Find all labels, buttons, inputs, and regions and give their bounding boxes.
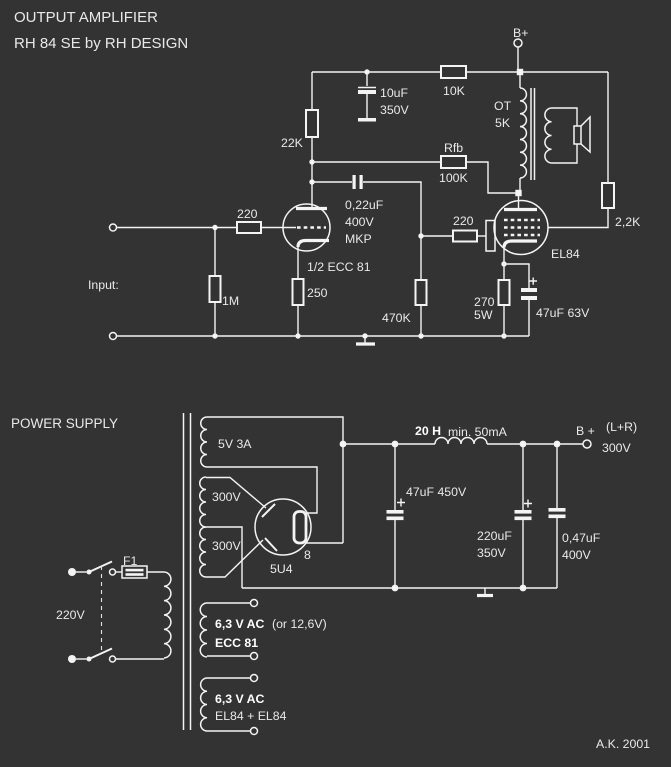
heater1-alt: (or 12,6V) — [272, 617, 327, 631]
cathode-cap-label: 47uF 63V — [536, 306, 590, 320]
page-subtitle: RH 84 SE by RH DESIGN — [14, 35, 188, 52]
ot-impedance: 5K — [495, 116, 511, 130]
heater2-tube: EL84 + EL84 — [215, 709, 287, 723]
filter-cap1-label: 47uF 450V — [406, 485, 467, 499]
bplus-output-terminal — [583, 440, 591, 448]
resistor-10k — [441, 66, 466, 78]
power-transformer — [164, 413, 207, 731]
winding-6v3-ecc81 — [200, 603, 207, 657]
page-title: OUTPUT AMPLIFIER — [14, 9, 158, 26]
resistor-470k — [416, 280, 427, 305]
heater1-value: 6,3 V AC — [215, 617, 265, 631]
output-transformer — [520, 88, 552, 180]
cap-10uf-voltage: 350V — [380, 103, 410, 117]
rectifier-label: 5U4 — [270, 562, 293, 576]
winding-6v3-el84 — [201, 678, 207, 731]
heater2-terminal-bottom — [251, 728, 258, 735]
fuse-label: F1 — [123, 554, 138, 568]
resistor-1m-label: 1M — [222, 294, 239, 308]
heater1-terminal-top — [251, 600, 258, 607]
resistor-270-power: 5W — [474, 308, 493, 322]
winding-300v-lower — [200, 527, 206, 577]
resistor-10k-label: 10K — [443, 84, 466, 98]
coupling-cap-type: MKP — [345, 232, 372, 246]
rfb-value: 100K — [439, 171, 469, 185]
schematic-page: B+ 10uF 350V 10K OT 5K 22K Rfb 100K 220 … — [0, 0, 671, 767]
filter-cap2-voltage: 350V — [477, 546, 507, 560]
heater1-terminal-bottom — [251, 653, 258, 660]
winding-300v-lower-label: 300V — [212, 539, 242, 553]
rfb-label: Rfb — [444, 141, 463, 155]
resistor-250 — [293, 279, 304, 305]
resistor-220-el84 — [453, 231, 477, 242]
heater2-value: 6,3 V AC — [215, 692, 265, 706]
power-supply-labels: POWER SUPPLY 5V 3A 300V 300V 20 H min. 5… — [11, 416, 637, 723]
resistor-22k — [306, 110, 318, 137]
coupling-cap-voltage: 400V — [345, 215, 375, 229]
amplifier-labels: B+ 10uF 350V 10K OT 5K 22K Rfb 100K 220 … — [88, 26, 641, 325]
input-terminal-top — [110, 224, 117, 231]
schematic-drawing: B+ 10uF 350V 10K OT 5K 22K Rfb 100K 220 … — [0, 0, 671, 767]
ot-label: OT — [494, 99, 512, 113]
el84-tube — [486, 201, 548, 255]
resistor-2k2-label: 2,2K — [615, 215, 641, 229]
resistor-220-ecc81 — [237, 222, 261, 233]
bplus-channels: (L+R) — [606, 420, 637, 434]
coupling-cap-value: 0,22uF — [345, 198, 384, 212]
resistor-1m — [210, 276, 221, 302]
choke-rating: min. 50mA — [448, 425, 508, 439]
input-label: Input: — [88, 278, 119, 292]
rectifier-5u4-tube — [255, 499, 311, 555]
winding-300v-upper — [200, 477, 206, 527]
resistor-250-label: 250 — [307, 286, 328, 300]
resistor-22k-label: 22K — [281, 136, 304, 150]
winding-300v-upper-label: 300V — [212, 490, 242, 504]
heater1-tube: ECC 81 — [215, 636, 258, 650]
capacitor-0-47uf-400v — [549, 508, 566, 518]
resistor-270-value: 270 — [474, 295, 495, 309]
bplus-voltage: 300V — [602, 441, 632, 455]
rectifier-pin-label: 8 — [304, 548, 311, 562]
cap-10uf-value: 10uF — [380, 86, 409, 100]
power-supply-wires — [76, 417, 583, 731]
capacitor-47uf-450v — [387, 499, 406, 521]
bplus-output-label: B + — [576, 424, 595, 438]
resistor-220-ecc81-label: 220 — [237, 207, 258, 221]
credit: A.K. 2001 — [596, 737, 650, 751]
filter-cap3-voltage: 400V — [562, 548, 592, 562]
tube1-label: 1/2 ECC 81 — [307, 260, 371, 274]
bplus-label: B+ — [513, 26, 528, 40]
tube2-label: EL84 — [551, 247, 580, 261]
capacitor-0-22uf — [353, 175, 363, 189]
heater2-terminal-top — [251, 675, 258, 682]
mains-label: 220V — [56, 608, 86, 622]
input-terminal-bottom — [110, 333, 117, 340]
filter-cap2-value: 220uF — [477, 529, 512, 543]
resistor-270 — [499, 280, 510, 305]
resistor-2k2 — [602, 183, 614, 208]
resistor-220-el84-label: 220 — [453, 214, 474, 228]
resistor-rfb-100k — [441, 156, 466, 168]
winding-5v — [201, 417, 207, 467]
filter-cap3-value: 0,47uF — [562, 531, 601, 545]
winding-5v-label: 5V 3A — [218, 437, 252, 451]
resistor-470k-label: 470K — [382, 311, 412, 325]
choke-value: 20 H — [415, 424, 441, 438]
power-supply-junctions — [340, 441, 561, 592]
power-supply-title: POWER SUPPLY — [11, 416, 118, 431]
bplus-terminal — [514, 39, 522, 47]
